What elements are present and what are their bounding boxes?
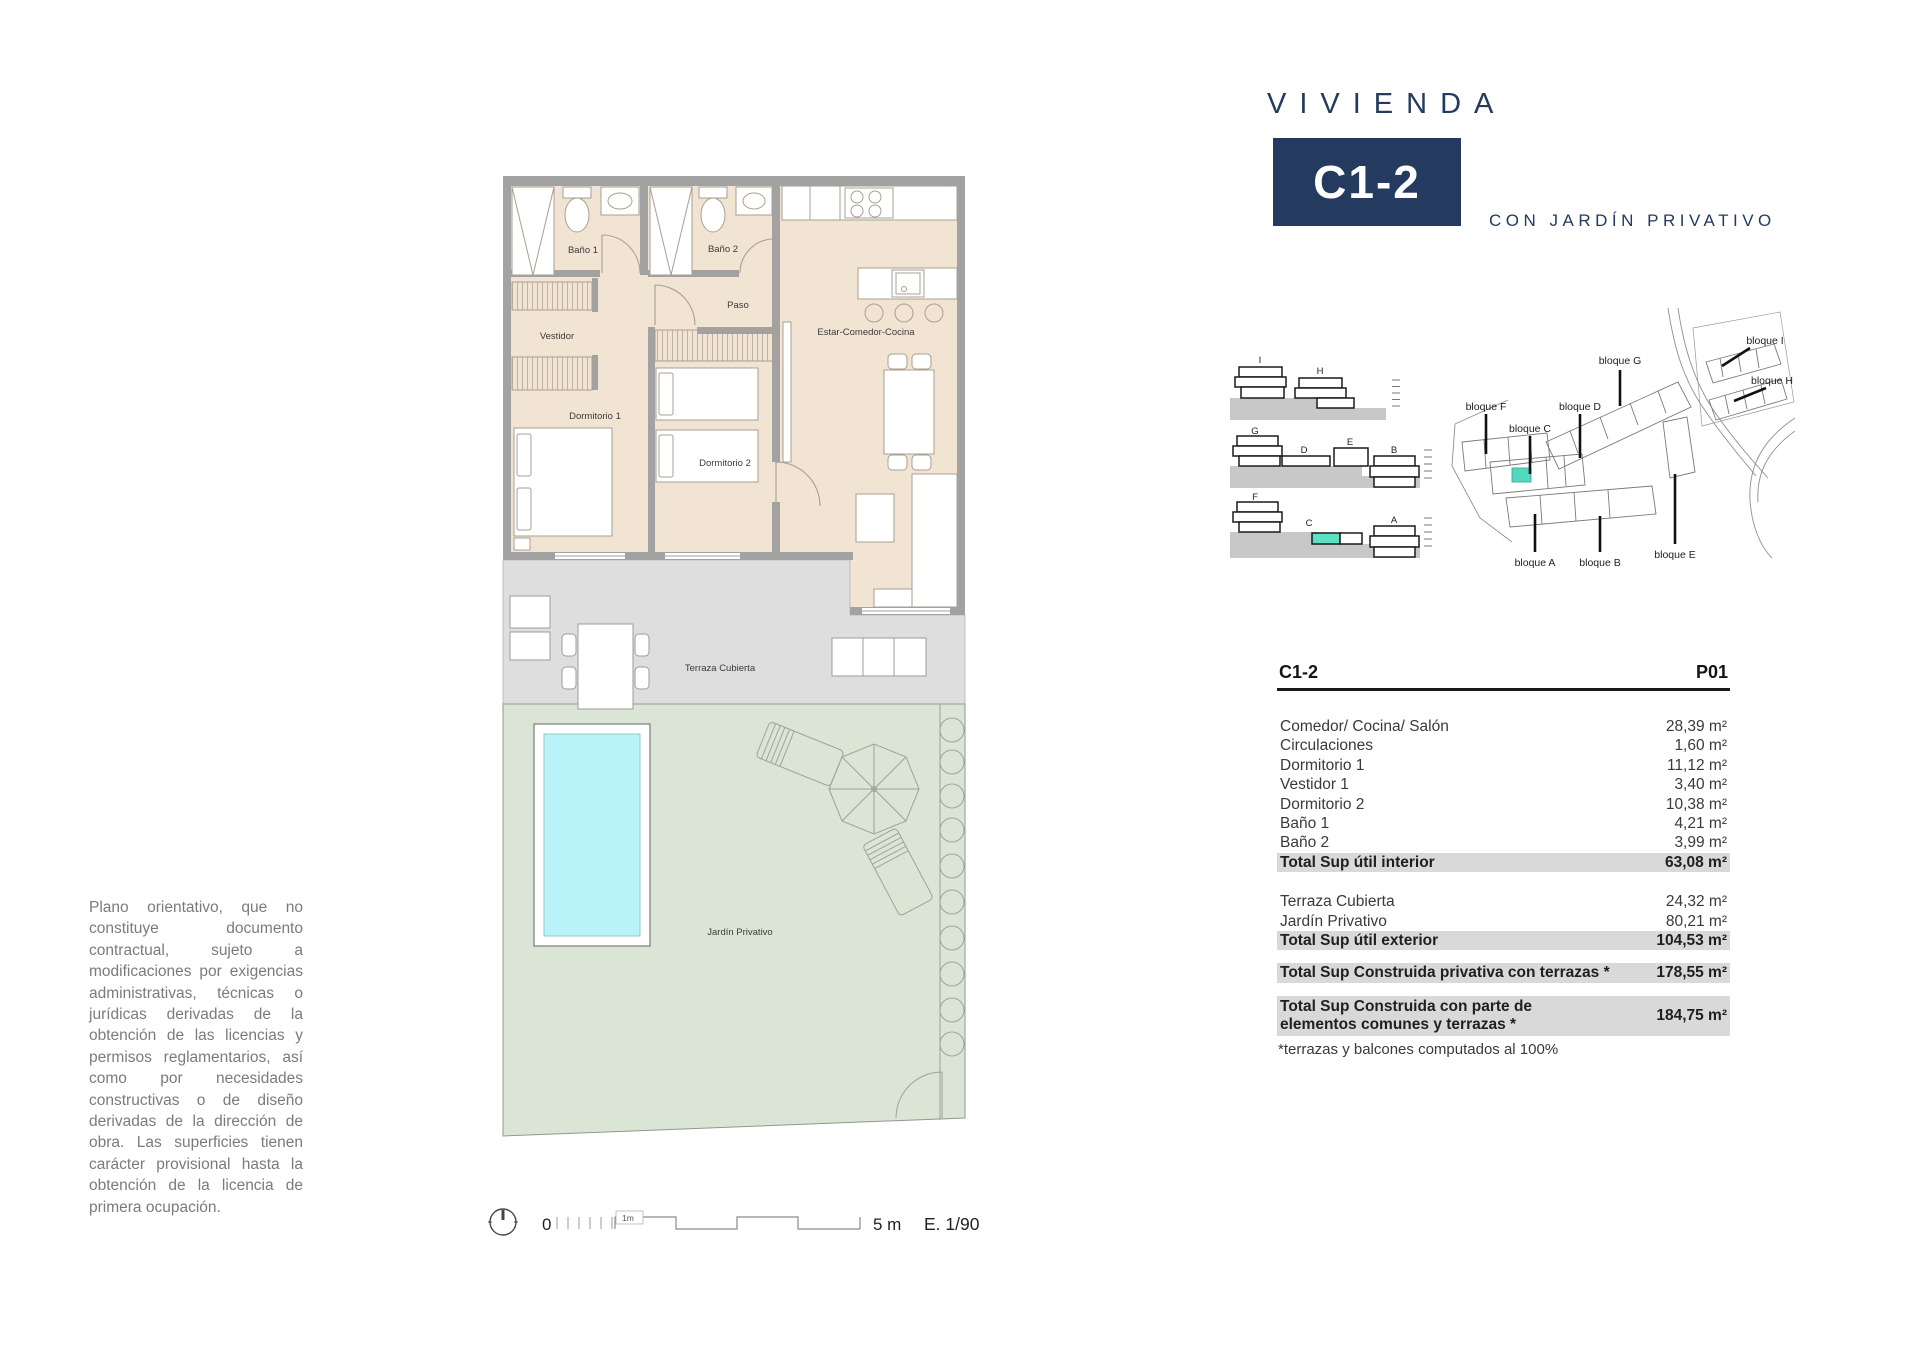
unit-badge: C1-2	[1273, 138, 1461, 226]
label-jardin: Jardín Privativo	[707, 927, 772, 938]
highlighted-unit-section	[1312, 533, 1340, 544]
table-row-total-comunes: Total Sup Construida con parte de elemen…	[1277, 996, 1730, 1036]
site-label-e: bloque E	[1654, 549, 1695, 561]
highlighted-unit-site	[1512, 468, 1531, 482]
table-row-total-construida: Total Sup Construida privativa con terra…	[1277, 963, 1730, 982]
label-terraza: Terraza Cubierta	[685, 663, 756, 674]
site-label-h: bloque H	[1751, 375, 1793, 387]
label-dorm1: Dormitorio 1	[569, 411, 621, 422]
table-row-total-exterior: Total Sup útil exterior104,53 m²	[1277, 931, 1730, 950]
table-footnote: *terrazas y balcones computados al 100%	[1277, 1041, 1730, 1058]
table-header-unit: C1-2	[1279, 662, 1318, 683]
scale-5m: 5 m	[873, 1215, 901, 1234]
block-sections: I H G D E B F	[1222, 350, 1437, 568]
parasol	[829, 744, 919, 834]
label-bano2: Baño 2	[708, 244, 738, 255]
unit-code: C1-2	[1313, 155, 1421, 209]
site-label-c: bloque C	[1509, 423, 1551, 435]
table-row: Terraza Cubierta24,32 m²	[1277, 892, 1730, 911]
site-label-i: bloque I	[1746, 335, 1783, 347]
disclaimer-text: Plano orientativo, que no constituye doc…	[89, 897, 303, 1218]
table-row: Dormitorio 111,12 m²	[1277, 756, 1730, 775]
table-header-floor: P01	[1696, 662, 1728, 683]
site-plan: bloque I bloque H bloque G bloque D bloq…	[1450, 306, 1795, 578]
scale-zero: 0	[542, 1215, 551, 1234]
section-letter: E	[1347, 437, 1353, 448]
label-estar: Estar-Comedor-Cocina	[817, 327, 915, 338]
label-bano1: Baño 1	[568, 245, 598, 256]
label-dorm2: Dormitorio 2	[699, 458, 751, 469]
table-row: Dormitorio 210,38 m²	[1277, 795, 1730, 814]
site-roads	[1452, 308, 1795, 558]
section-row-3: F C A	[1230, 492, 1432, 558]
section-letter: D	[1301, 445, 1308, 456]
site-buildings	[1462, 312, 1794, 527]
site-label-g: bloque G	[1599, 355, 1642, 367]
scale-minor-ticks	[557, 1217, 612, 1229]
table-row: Jardín Privativo80,21 m²	[1277, 912, 1730, 931]
site-label-b: bloque B	[1579, 557, 1620, 569]
section-letter: I	[1259, 355, 1262, 366]
table-row: Comedor/ Cocina/ Salón28,39 m²	[1277, 717, 1730, 736]
scale-stepped-bar	[615, 1217, 860, 1229]
section-letter: G	[1251, 426, 1258, 437]
site-labels: bloque I bloque H bloque G bloque D bloq…	[1466, 335, 1793, 569]
unit-subtitle: CON JARDÍN PRIVATIVO	[1489, 211, 1776, 231]
site-leader-lines	[1486, 348, 1766, 552]
table-row: Baño 14,21 m²	[1277, 814, 1730, 833]
section-letter: B	[1391, 445, 1397, 456]
section-row-1: I H	[1230, 355, 1400, 420]
section-letter: F	[1252, 492, 1258, 503]
table-row: Circulaciones1,60 m²	[1277, 736, 1730, 755]
section-letter: C	[1306, 518, 1313, 529]
plan-sheet: Plano orientativo, que no constituye doc…	[0, 0, 1920, 1357]
section-row-2: G D E B	[1230, 426, 1432, 488]
label-vestidor: Vestidor	[540, 331, 574, 342]
north-compass-icon	[488, 1209, 518, 1235]
section-letter: A	[1391, 515, 1398, 526]
site-label-f: bloque F	[1466, 401, 1507, 413]
scale-1m: 1m	[622, 1213, 634, 1223]
pool	[544, 734, 640, 936]
brand-title: VIVIENDA	[1267, 88, 1527, 121]
table-row-total-interior: Total Sup útil interior63,08 m²	[1277, 853, 1730, 872]
table-row: Vestidor 13,40 m²	[1277, 775, 1730, 794]
section-letter: H	[1317, 366, 1324, 377]
site-label-a: bloque A	[1515, 557, 1556, 569]
scale-ratio: E. 1/90	[924, 1214, 980, 1234]
label-paso: Paso	[727, 300, 749, 311]
scale-bar: 0 1m 5 m E. 1/90	[488, 1192, 1048, 1247]
site-label-d: bloque D	[1559, 401, 1601, 413]
table-header: C1-2 P01	[1277, 662, 1730, 691]
table-row: Baño 23,99 m²	[1277, 833, 1730, 852]
area-table: C1-2 P01 Comedor/ Cocina/ Salón28,39 m² …	[1277, 662, 1730, 1058]
floor-plan: Baño 1 Baño 2 Paso Vestidor Estar-Comedo…	[500, 172, 967, 1147]
